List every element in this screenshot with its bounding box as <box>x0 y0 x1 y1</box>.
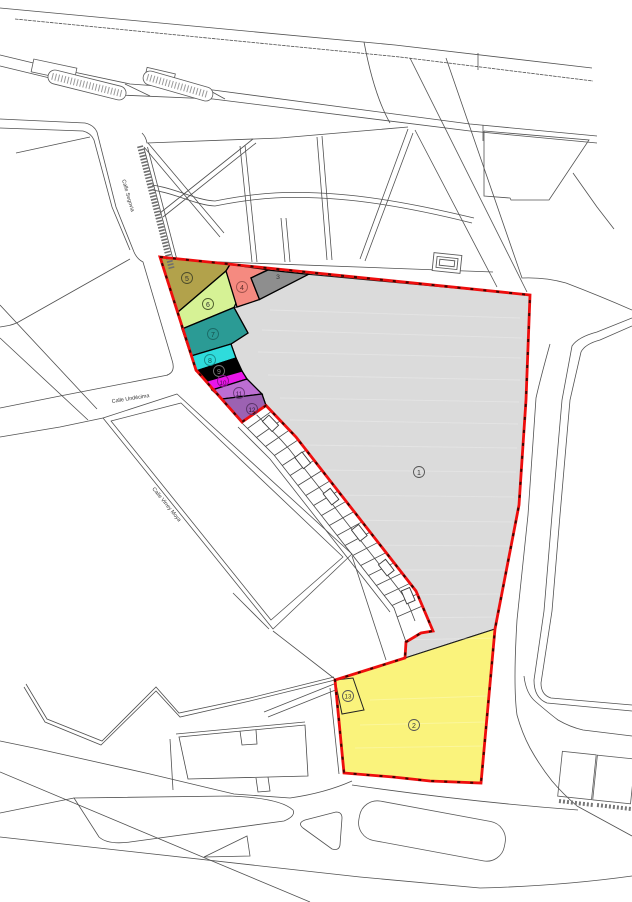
svg-text:6: 6 <box>206 302 210 309</box>
svg-text:9: 9 <box>217 369 221 376</box>
svg-text:12: 12 <box>249 407 256 414</box>
svg-text:10: 10 <box>220 380 227 387</box>
svg-text:1: 1 <box>417 470 421 477</box>
svg-text:11: 11 <box>236 391 243 398</box>
svg-text:4: 4 <box>240 285 244 292</box>
svg-text:8: 8 <box>208 358 212 365</box>
svg-text:3: 3 <box>276 274 280 281</box>
svg-text:7: 7 <box>211 332 215 339</box>
svg-text:5: 5 <box>185 276 189 283</box>
svg-text:2: 2 <box>412 723 416 730</box>
svg-text:13: 13 <box>345 694 352 701</box>
